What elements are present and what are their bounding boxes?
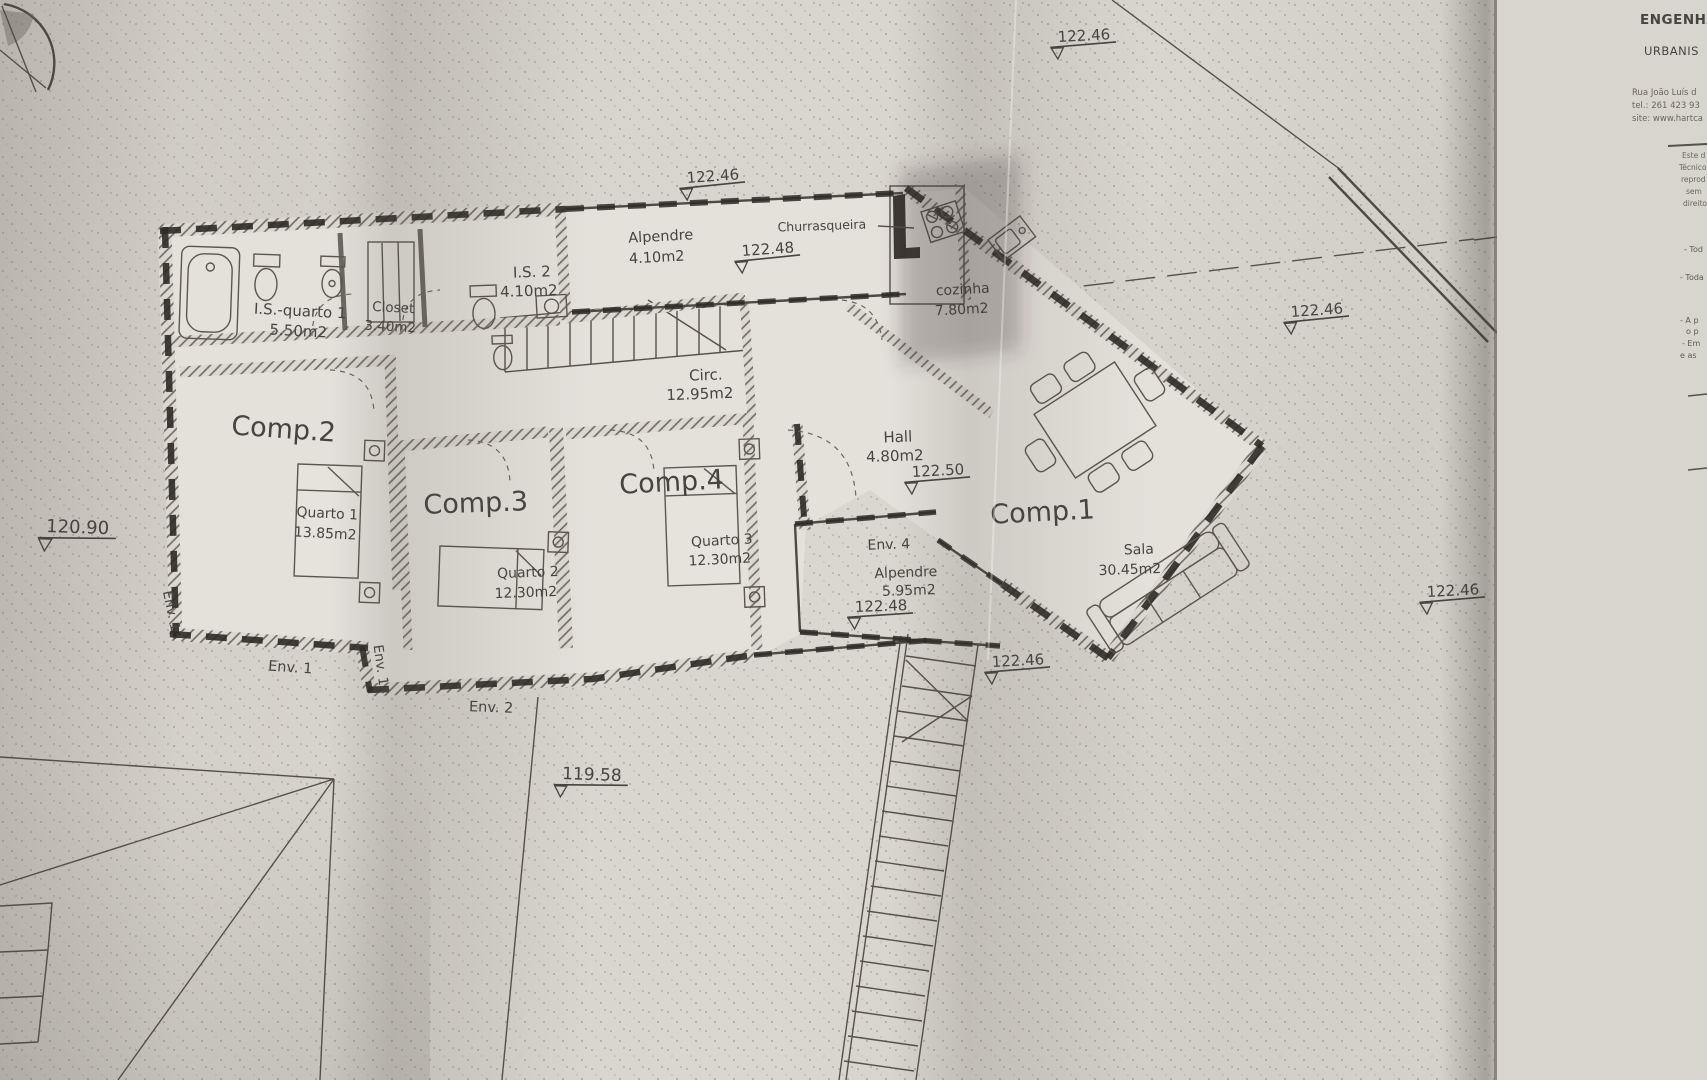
firm-name: ENGENHA (1640, 12, 1707, 28)
address-line1: Rua João Luís d (1632, 88, 1697, 98)
label-comp1: Comp.1 (990, 494, 1096, 530)
label-cozinha: cozinha (935, 281, 990, 300)
address-line2: tel.: 261 423 93 (1632, 101, 1700, 111)
fine-print-4: sem (1686, 187, 1702, 196)
note-1: - Tod (1684, 245, 1703, 254)
label-alpendre-top: Alpendre (628, 227, 694, 246)
label-circ: Circ. (689, 365, 723, 384)
label-quarto3-area: 12.30m2 (688, 550, 751, 569)
label-sala: Sala (1124, 541, 1154, 558)
note-5: - Em (1682, 339, 1700, 348)
svg-text:119.58: 119.58 (562, 764, 622, 786)
note-6: e as (1680, 351, 1697, 360)
fine-print-1: Este d (1682, 151, 1706, 160)
label-env4: Env. 4 (867, 536, 910, 553)
label-alpendre-top-area: 4.10m2 (629, 249, 685, 268)
label-churrasqueira: Churrasqueira (777, 216, 866, 234)
floor-plan-drawing: I.S.-quarto 1 5.50m2 Closet 3.40m2 I.S. … (0, 0, 1707, 1080)
label-quarto2: Quarto 2 (497, 564, 559, 582)
label-env4-alpendre: Alpendre (874, 564, 937, 582)
note-3: - A p (1680, 316, 1699, 325)
label-closet: Closet (372, 299, 415, 317)
floor-plan-photo: I.S.-quarto 1 5.50m2 Closet 3.40m2 I.S. … (0, 0, 1707, 1080)
label-is-quarto1-area: 5.50m2 (269, 321, 327, 342)
title-block: ENGENHA URBANIS Rua João Luís d tel.: 26… (1494, 0, 1707, 1080)
label-comp3: Comp.3 (423, 486, 529, 521)
label-cozinha-area: 7.80m2 (935, 301, 989, 320)
label-circ-area: 12.95m2 (666, 384, 734, 404)
note-4: o p (1686, 327, 1699, 336)
label-is2-area: 4.10m2 (500, 281, 558, 301)
address-line3: site: www.hartca (1632, 114, 1703, 124)
title-block-panel (1497, 0, 1707, 1080)
label-env2: Env. 2 (469, 699, 514, 717)
label-quarto2-area: 12.30m2 (494, 584, 557, 602)
svg-text:122.48: 122.48 (855, 596, 908, 616)
label-closet-area: 3.40m2 (364, 318, 417, 337)
label-is2: I.S. 2 (513, 262, 551, 281)
label-quarto1-area: 13.85m2 (294, 524, 357, 543)
panel-edge (1494, 0, 1497, 1080)
label-quarto3: Quarto 3 (691, 531, 753, 550)
firm-line2: URBANIS (1644, 44, 1699, 58)
label-hall: Hall (883, 428, 912, 447)
svg-text:120.90: 120.90 (46, 516, 110, 539)
label-sala-area: 30.45m2 (1098, 561, 1161, 579)
fine-print-3: reprod (1681, 175, 1706, 184)
note-2: - Toda (1680, 273, 1704, 282)
label-env1: Env. 1 (268, 658, 313, 677)
fine-print-5: direito (1683, 199, 1707, 208)
label-quarto1: Quarto 1 (296, 504, 358, 523)
label-comp4: Comp.4 (619, 464, 725, 500)
fine-print-2: Técnico (1678, 163, 1707, 172)
